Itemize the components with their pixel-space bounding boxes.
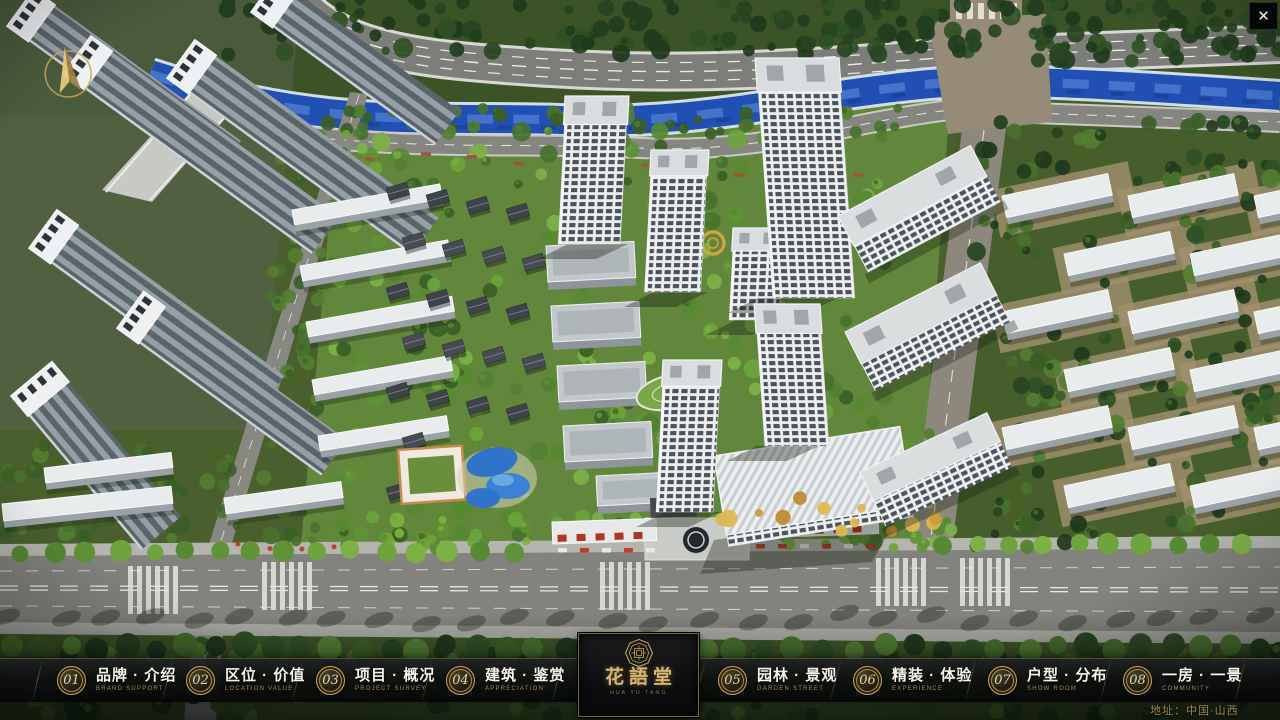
compass-icon	[36, 38, 100, 102]
close-button[interactable]: ✕	[1249, 2, 1278, 30]
nav-label-cn: 品牌 · 介绍	[96, 668, 176, 684]
nav-label-en: COMMUNITY	[1162, 686, 1230, 692]
nav-number-badge: 03	[316, 666, 345, 695]
nav-label-en: APPRECIATION	[485, 686, 553, 692]
nav-label-en: BRAND SUPPORT	[96, 686, 164, 692]
nav-item-garden-landscape[interactable]: 05 园林 · 景观 GARDEN STREET	[718, 659, 837, 701]
logo-title: 花語堂	[605, 668, 677, 688]
nav-label-en: GARDEN STREET	[757, 686, 825, 692]
project-address: 地址：中国·山西	[1150, 702, 1239, 718]
logo-subtitle: HUA YU TANG	[610, 690, 667, 695]
nav-item-floorplan[interactable]: 07 户型 · 分布 SHOW ROOM	[988, 659, 1107, 701]
nav-number-badge: 01	[57, 666, 86, 695]
nav-item-brand-intro[interactable]: 01 品牌 · 介绍 BRAND SUPPORT	[57, 659, 176, 701]
logo-plaque: 花語堂 HUA YU TANG	[578, 633, 699, 717]
nav-label-en: SHOW ROOM	[1027, 686, 1095, 692]
nav-label-cn: 园林 · 景观	[757, 668, 837, 684]
nav-number-badge: 07	[988, 666, 1017, 695]
nav-label-en: LOCATION VALUE	[225, 686, 294, 692]
nav-number-badge: 08	[1123, 666, 1152, 695]
nav-number-badge: 04	[446, 666, 475, 695]
nav-number-badge: 02	[186, 666, 215, 695]
nav-item-project-survey[interactable]: 03 项目 · 概况 PROJECT SURVEY	[316, 659, 439, 701]
nav-label-cn: 户型 · 分布	[1027, 668, 1107, 684]
nav-label-en: EXPERIENCE	[892, 686, 960, 692]
nav-label-cn: 建筑 · 鉴赏	[485, 668, 565, 684]
nav-item-interior-experience[interactable]: 06 精装 · 体验 EXPERIENCE	[853, 659, 972, 701]
nav-item-room-view[interactable]: 08 一房 · 一景 COMMUNITY	[1123, 659, 1242, 701]
nav-item-architecture[interactable]: 04 建筑 · 鉴赏 APPRECIATION	[446, 659, 565, 701]
masterplan-3d-render[interactable]	[0, 0, 1280, 720]
sales-presentation-window: ✕ 01 品牌 · 介绍 BRAND SUPPORT 02 区位 · 价值 LO…	[0, 0, 1280, 720]
nav-label-cn: 精装 · 体验	[892, 668, 972, 684]
nav-label-cn: 一房 · 一景	[1162, 668, 1242, 684]
nav-label-cn: 区位 · 价值	[225, 668, 306, 684]
nav-item-location-value[interactable]: 02 区位 · 价值 LOCATION VALUE	[186, 659, 306, 701]
nav-number-badge: 06	[853, 666, 882, 695]
nav-number-badge: 05	[718, 666, 747, 695]
close-icon: ✕	[1257, 9, 1270, 24]
nav-label-cn: 项目 · 概况	[355, 668, 439, 684]
logo-seal-icon	[624, 638, 654, 668]
nav-label-en: PROJECT SURVEY	[355, 686, 427, 692]
nav-divider	[32, 660, 43, 700]
